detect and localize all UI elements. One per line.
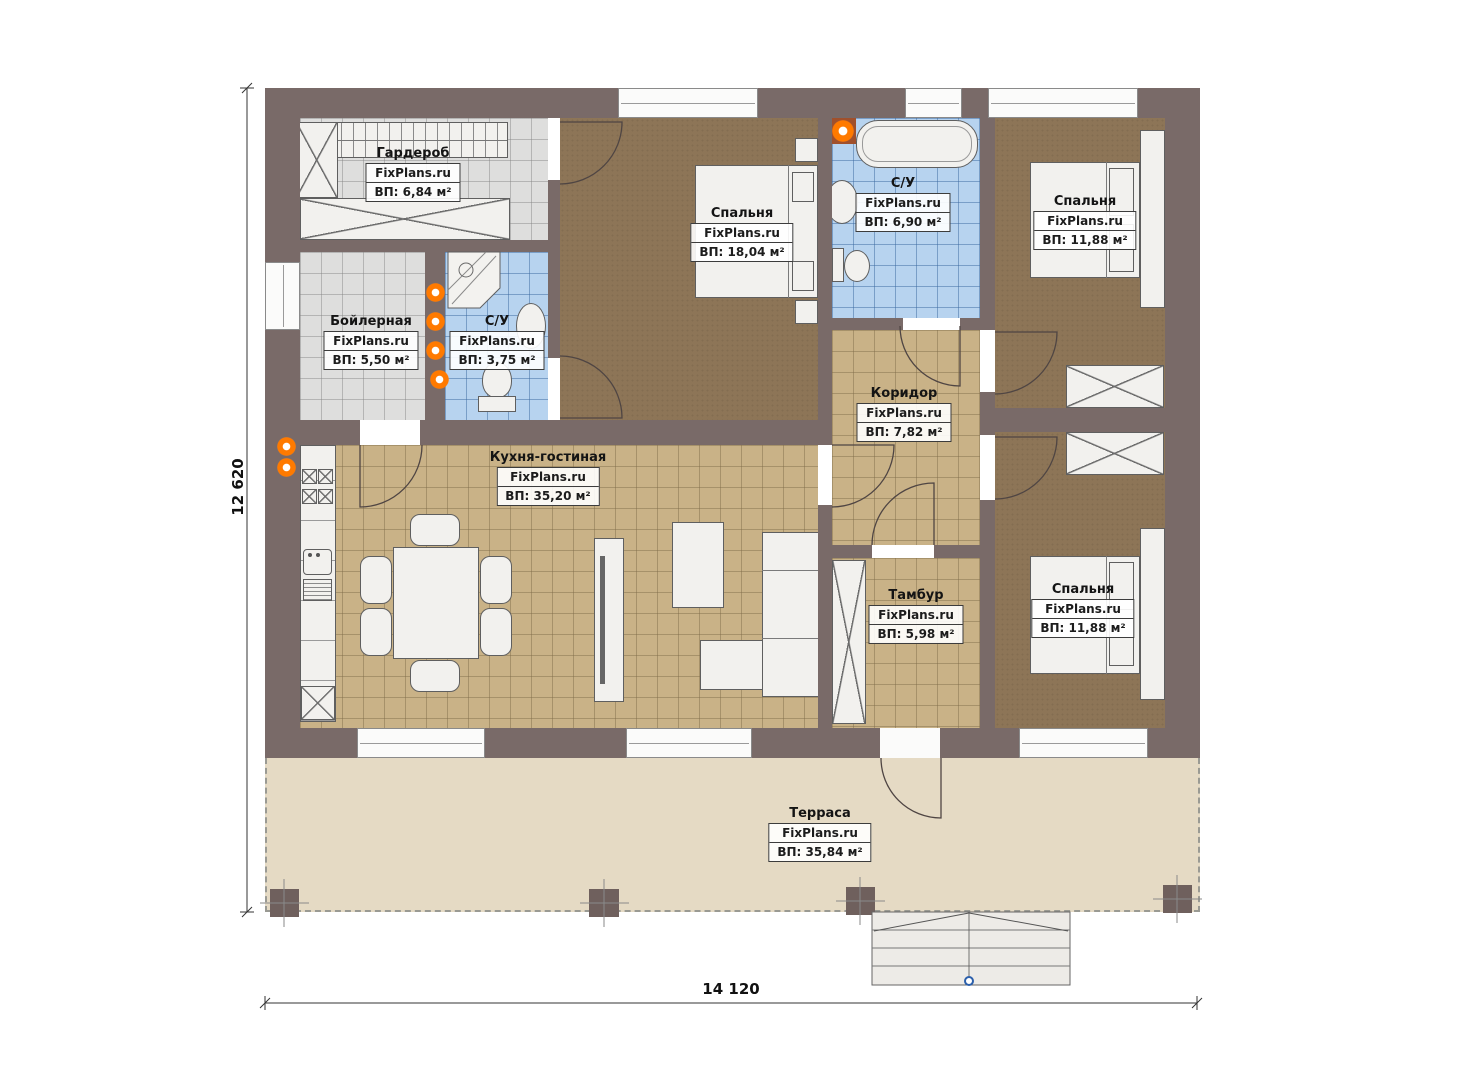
room-area: ВП: 6,90 м²	[856, 212, 949, 231]
brand-watermark: FixPlans.ru	[869, 606, 962, 624]
sofa-cushion-line	[762, 638, 820, 639]
floor-plan: Гардероб FixPlans.ruВП: 6,84 м² Бойлерна…	[0, 0, 1474, 1080]
window	[988, 88, 1138, 118]
step-direction-marker	[965, 977, 973, 985]
brand-watermark: FixPlans.ru	[366, 164, 459, 182]
sofa-chaise	[700, 640, 763, 690]
terrace-column	[589, 889, 619, 917]
bathtub-inner	[862, 126, 972, 162]
wardrobe-unit	[300, 198, 510, 240]
entrance-door-opening	[880, 728, 940, 758]
side-unit	[1140, 528, 1165, 700]
wall	[940, 728, 1019, 758]
brand-watermark: FixPlans.ru	[856, 194, 949, 212]
heat-point-icon	[832, 120, 854, 142]
heat-point-icon	[426, 341, 445, 360]
wall	[420, 420, 818, 445]
brand-watermark: FixPlans.ru	[450, 332, 543, 350]
room-area: ВП: 3,75 м²	[450, 350, 543, 369]
room-area: ВП: 35,20 м²	[497, 486, 598, 505]
wall	[265, 330, 300, 758]
chair	[360, 608, 392, 656]
terrace-column	[846, 887, 875, 915]
wall	[265, 88, 618, 118]
room-label-bedroom-right-bottom: Спальня FixPlans.ruВП: 11,88 м²	[1031, 582, 1134, 638]
nightstand	[795, 300, 818, 324]
toilet-bowl	[844, 250, 870, 282]
brand-watermark: FixPlans.ru	[1034, 212, 1135, 230]
pillow	[792, 261, 814, 291]
room-area: ВП: 6,84 м²	[366, 182, 459, 201]
wall	[758, 88, 905, 118]
wall	[832, 318, 903, 330]
wall	[300, 240, 548, 252]
tv-stand	[594, 538, 624, 702]
wall	[425, 252, 445, 420]
terrace-column	[1163, 885, 1192, 913]
sofa-cushion-line	[762, 570, 820, 571]
dimension-width: 14 120	[689, 980, 773, 998]
window	[1019, 728, 1148, 758]
heat-point-icon	[430, 370, 449, 389]
brand-watermark: FixPlans.ru	[691, 224, 792, 242]
wall	[265, 88, 300, 262]
coffee-table	[672, 522, 724, 608]
chair	[480, 556, 512, 604]
brand-watermark: FixPlans.ru	[324, 332, 417, 350]
wall	[548, 180, 560, 358]
wall	[980, 118, 995, 330]
stove-burner	[302, 489, 317, 504]
room-label-vestibule: Тамбур FixPlans.ruВП: 5,98 м²	[868, 588, 963, 644]
heat-point-icon	[277, 458, 296, 477]
closet-unit	[832, 560, 866, 724]
entrance-steps	[872, 912, 1070, 985]
toilet-tank	[832, 248, 844, 282]
toilet-tank	[478, 396, 516, 412]
dimension-height: 12 620	[229, 445, 247, 529]
wall	[934, 545, 995, 558]
room-area: ВП: 18,04 м²	[691, 242, 792, 261]
stove-burner	[318, 469, 333, 484]
room-area: ВП: 7,82 м²	[857, 422, 950, 441]
room-label-bedroom-right-top: Спальня FixPlans.ruВП: 11,88 м²	[1033, 194, 1136, 250]
wall	[980, 500, 995, 728]
pillow	[792, 172, 814, 202]
brand-watermark: FixPlans.ru	[857, 404, 950, 422]
wall	[300, 420, 360, 445]
wall	[818, 545, 872, 558]
room-area: ВП: 35,84 м²	[769, 842, 870, 861]
nightstand	[795, 138, 818, 162]
chair	[480, 608, 512, 656]
heat-point-icon	[426, 312, 445, 331]
room-label-boiler: Бойлерная FixPlans.ruВП: 5,50 м²	[323, 314, 418, 370]
brand-watermark: FixPlans.ru	[769, 824, 870, 842]
heat-point-icon	[277, 437, 296, 456]
room-area: ВП: 11,88 м²	[1034, 230, 1135, 249]
terrace-floor	[265, 758, 1200, 912]
terrace-column	[270, 889, 299, 917]
window	[905, 88, 962, 118]
wardrobe-unit	[1066, 365, 1164, 408]
room-label-bath: С/У FixPlans.ruВП: 6,90 м²	[855, 176, 950, 232]
chair	[410, 514, 460, 546]
room-label-terrace: Терраса FixPlans.ruВП: 35,84 м²	[768, 806, 871, 862]
counter-unit	[301, 686, 335, 720]
window	[265, 262, 300, 330]
faucet-dot	[316, 553, 320, 557]
stove-burner	[302, 469, 317, 484]
wardrobe-unit	[296, 122, 338, 198]
wall	[960, 318, 980, 330]
sofa	[762, 532, 820, 697]
heat-point-icon	[426, 283, 445, 302]
wall	[818, 505, 832, 728]
stove-burner	[318, 489, 333, 504]
wall	[980, 392, 995, 435]
wall	[1165, 88, 1200, 758]
room-label-corridor: Коридор FixPlans.ruВП: 7,82 м²	[856, 386, 951, 442]
wall	[962, 88, 988, 118]
tv	[600, 556, 605, 684]
brand-watermark: FixPlans.ru	[497, 468, 598, 486]
chair	[410, 660, 460, 692]
window	[626, 728, 752, 758]
brand-watermark: FixPlans.ru	[1032, 600, 1133, 618]
window	[357, 728, 485, 758]
dining-table	[393, 547, 479, 659]
room-label-wardrobe: Гардероб FixPlans.ruВП: 6,84 м²	[365, 146, 460, 202]
room-area: ВП: 5,98 м²	[869, 624, 962, 643]
wall	[485, 728, 626, 758]
room-area: ВП: 11,88 м²	[1032, 618, 1133, 637]
wall	[265, 728, 357, 758]
wall	[995, 408, 1165, 432]
wardrobe-unit	[1066, 432, 1164, 475]
room-label-bath-small: С/У FixPlans.ruВП: 3,75 м²	[449, 314, 544, 370]
faucet-dot	[308, 553, 312, 557]
side-unit	[1140, 130, 1165, 308]
window	[618, 88, 758, 118]
wall	[752, 728, 880, 758]
room-label-kitchen-living: Кухня-гостиная FixPlans.ruВП: 35,20 м²	[490, 450, 606, 506]
wall	[818, 118, 832, 445]
drying-rack	[303, 579, 332, 601]
chair	[360, 556, 392, 604]
room-area: ВП: 5,50 м²	[324, 350, 417, 369]
room-label-bedroom-main: Спальня FixPlans.ruВП: 18,04 м²	[690, 206, 793, 262]
wall	[1148, 728, 1200, 758]
